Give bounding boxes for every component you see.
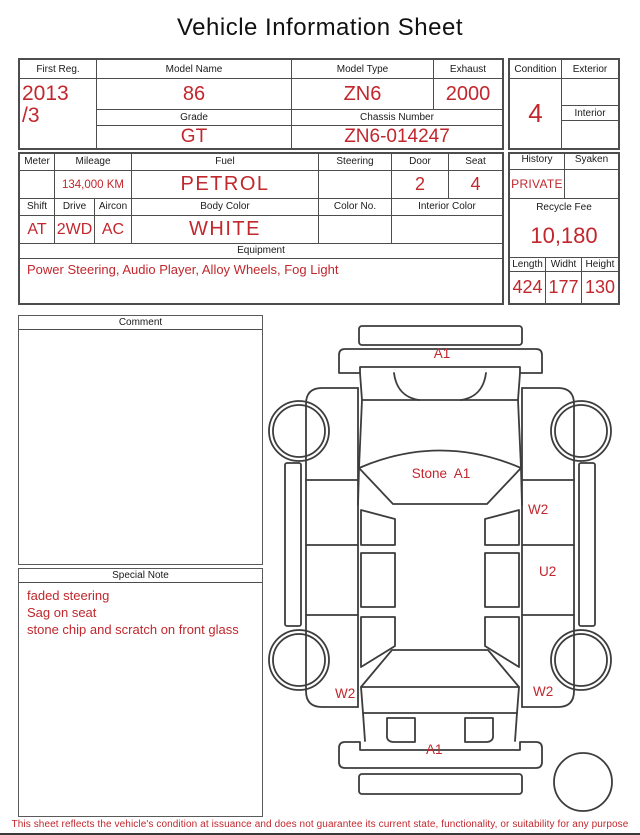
meter-value [20, 171, 55, 198]
length-value: 424 [510, 272, 546, 303]
model-name-cell: Model Name 86 [97, 60, 292, 109]
right-rear-fender-damage-label: W2 [533, 684, 553, 699]
mileage-label: Mileage [55, 154, 132, 170]
exhaust-cell: Exhaust 2000 [434, 60, 502, 109]
exhaust-label: Exhaust [434, 60, 502, 79]
condition-box: Condition 4 Exterior Interior [508, 58, 620, 150]
first-reg-month: /3 [22, 105, 96, 127]
grade-cell: Grade GT [97, 110, 292, 148]
syaken-value [565, 170, 618, 198]
special-note-line: Sag on seat [27, 604, 254, 621]
vehicle-spec-table: Meter Mileage Fuel Steering Door Seat 13… [18, 152, 504, 305]
front-left-wheel-inner [273, 405, 325, 457]
left-front-window [361, 510, 395, 545]
recycle-fee-label: Recycle Fee [510, 199, 618, 215]
interior-color-label: Interior Color [392, 199, 502, 215]
meter-label: Meter [20, 154, 55, 170]
special-note-body: faded steering Sag on seat stone chip an… [19, 583, 262, 816]
fuel-label: Fuel [132, 154, 319, 170]
condition-value: 4 [510, 79, 561, 148]
damage-labels: A1 Stone A1 W2 U2 W2 W2 A1 [335, 346, 556, 757]
car-top-view [269, 326, 612, 811]
first-reg-value: 2013 /3 [20, 79, 96, 148]
left-tail-light [387, 718, 415, 742]
right-front-door-damage-label: W2 [528, 502, 548, 517]
history-recycle-box: History Syaken PRIVATE Recycle Fee 10,18… [508, 152, 620, 305]
left-panel-dividers [306, 480, 358, 615]
special-note-label: Special Note [19, 569, 262, 583]
aircon-value: AC [95, 216, 132, 243]
door-value: 2 [392, 171, 449, 198]
left-rear-window [361, 553, 395, 607]
condition-cell: Condition 4 [510, 60, 562, 148]
rear-right-wheel [551, 630, 611, 690]
equipment-label: Equipment [20, 244, 502, 259]
vehicle-information-sheet: Vehicle Information Sheet First Reg. 201… [0, 0, 640, 835]
interior-value [562, 121, 618, 148]
steering-value [319, 171, 392, 198]
rear-lip-shape [359, 774, 522, 794]
right-rocker-strip [579, 463, 595, 626]
history-label: History [510, 154, 565, 169]
shift-label: Shift [20, 199, 55, 215]
hood-left-arc [394, 373, 419, 400]
left-side-panels [306, 388, 358, 707]
front-lip-shape [359, 326, 522, 345]
color-no-label: Color No. [319, 199, 392, 215]
chassis-number-value: ZN6-014247 [292, 126, 502, 148]
mileage-value: 134,000 KM [55, 171, 132, 198]
chassis-number-cell: Chassis Number ZN6-014247 [292, 110, 502, 148]
comment-box: Comment [18, 315, 263, 565]
right-tail-light [465, 718, 493, 742]
hood-left-edge [359, 373, 362, 468]
hood-right-edge [518, 373, 521, 468]
page-title: Vehicle Information Sheet [0, 14, 640, 42]
recycle-fee-value: 10,180 [510, 215, 618, 257]
front-right-wheel [551, 401, 611, 461]
equipment-value: Power Steering, Audio Player, Alloy Whee… [20, 259, 502, 303]
door-label: Door [392, 154, 449, 170]
first-reg-label: First Reg. [20, 60, 96, 79]
car-damage-diagram: A1 Stone A1 W2 U2 W2 W2 A1 [265, 310, 630, 818]
condition-label: Condition [510, 60, 561, 79]
body-color-value: WHITE [132, 216, 319, 243]
right-side-panels [522, 388, 574, 707]
rear-left-wheel [269, 630, 329, 690]
left-quarter-window [361, 617, 395, 667]
spare-tire [554, 753, 612, 811]
vehicle-identity-table: First Reg. 2013 /3 Model Name 86 Model T… [18, 58, 504, 150]
exhaust-value: 2000 [434, 79, 502, 109]
first-reg-cell: First Reg. 2013 /3 [20, 60, 97, 148]
aircon-label: Aircon [95, 199, 132, 215]
exterior-label: Exterior [562, 60, 618, 79]
front-left-wheel [269, 401, 329, 461]
seat-value: 4 [449, 171, 502, 198]
rear-glass-shape [361, 650, 519, 687]
comment-label: Comment [19, 316, 262, 330]
seat-label: Seat [449, 154, 502, 170]
special-note-box: Special Note faded steering Sag on seat … [18, 568, 263, 817]
disclaimer-text: This sheet reflects the vehicle's condit… [0, 819, 640, 830]
syaken-label: Syaken [565, 154, 618, 169]
interior-label: Interior [562, 105, 618, 121]
model-type-value: ZN6 [292, 79, 433, 109]
first-reg-year: 2013 [22, 83, 96, 105]
front-bumper-damage-label: A1 [434, 346, 451, 361]
width-label: Widht [546, 258, 582, 271]
right-front-window [485, 510, 519, 545]
model-name-label: Model Name [97, 60, 291, 79]
drive-label: Drive [55, 199, 95, 215]
shift-value: AT [20, 216, 55, 243]
body-color-label: Body Color [132, 199, 319, 215]
steering-label: Steering [319, 154, 392, 170]
right-panel-dividers [522, 480, 574, 615]
color-no-value [319, 216, 392, 243]
right-rear-window [485, 553, 519, 607]
width-value: 177 [546, 272, 582, 303]
grade-value: GT [97, 126, 291, 148]
comment-body [19, 330, 262, 564]
special-note-line: faded steering [27, 587, 254, 604]
model-type-label: Model Type [292, 60, 433, 79]
trunk-lid [361, 687, 519, 713]
grade-label: Grade [97, 110, 291, 126]
left-rocker-strip [285, 463, 301, 626]
windshield-damage-label: Stone A1 [412, 466, 471, 481]
model-type-cell: Model Type ZN6 [292, 60, 434, 109]
right-rear-door-damage-label: U2 [539, 564, 556, 579]
hood-right-arc [461, 373, 486, 400]
length-label: Length [510, 258, 546, 271]
rear-left-wheel-inner [273, 634, 325, 686]
right-quarter-window [485, 617, 519, 667]
chassis-number-label: Chassis Number [292, 110, 502, 126]
height-value: 130 [582, 272, 618, 303]
drive-value: 2WD [55, 216, 95, 243]
left-rear-fender-damage-label: W2 [335, 686, 355, 701]
front-right-wheel-inner [555, 405, 607, 457]
interior-color-value [392, 216, 502, 243]
special-note-line: stone chip and scratch on front glass [27, 621, 254, 638]
history-value: PRIVATE [510, 170, 565, 198]
model-name-value: 86 [97, 79, 291, 109]
rear-bumper-damage-label: A1 [426, 742, 443, 757]
fuel-value: PETROL [132, 171, 319, 198]
exterior-value [562, 79, 618, 105]
rear-right-wheel-inner [555, 634, 607, 686]
height-label: Height [582, 258, 618, 271]
